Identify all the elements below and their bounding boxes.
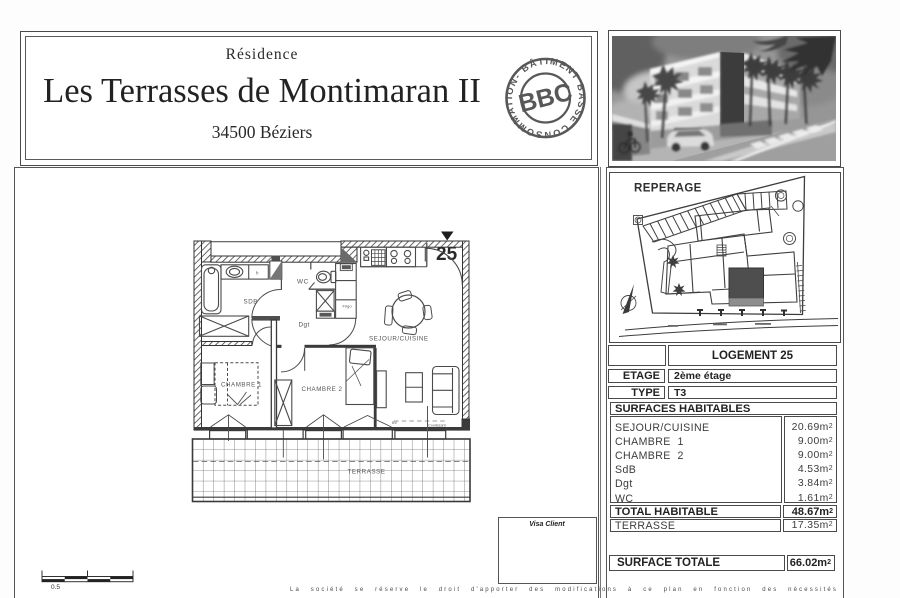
svg-text:Frigo: Frigo <box>343 304 353 309</box>
svg-text:REPERAGE: REPERAGE <box>634 183 702 195</box>
svg-text:CHAMBRE 1: CHAMBRE 1 <box>221 382 262 389</box>
svg-text:0.5: 0.5 <box>51 584 60 591</box>
svg-text:Dgt: Dgt <box>299 322 310 329</box>
svg-text:CHAMBRE 2: CHAMBRE 2 <box>302 386 343 393</box>
svg-text:h: h <box>256 271 259 276</box>
svg-text:TERRASSE: TERRASSE <box>348 469 386 476</box>
svg-text:SEJOUR/CUISINE: SEJOUR/CUISINE <box>369 336 429 343</box>
svg-text:WC: WC <box>297 279 309 286</box>
svg-text:Coulissant: Coulissant <box>428 424 447 428</box>
svg-text:BV: BV <box>392 421 398 425</box>
